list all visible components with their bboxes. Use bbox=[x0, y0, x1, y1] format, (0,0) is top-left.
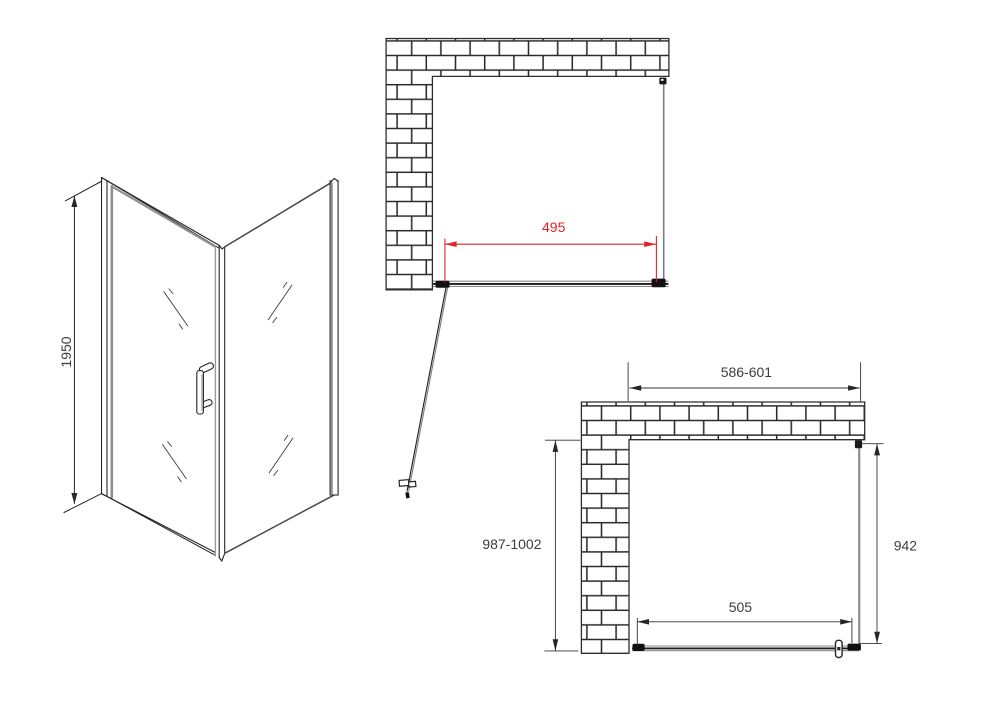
svg-text:586-601: 586-601 bbox=[721, 364, 773, 380]
svg-text:1950: 1950 bbox=[58, 336, 74, 367]
svg-text:495: 495 bbox=[542, 219, 566, 235]
svg-text:942: 942 bbox=[894, 538, 918, 554]
svg-text:987-1002: 987-1002 bbox=[482, 536, 541, 552]
svg-text:505: 505 bbox=[729, 599, 753, 615]
